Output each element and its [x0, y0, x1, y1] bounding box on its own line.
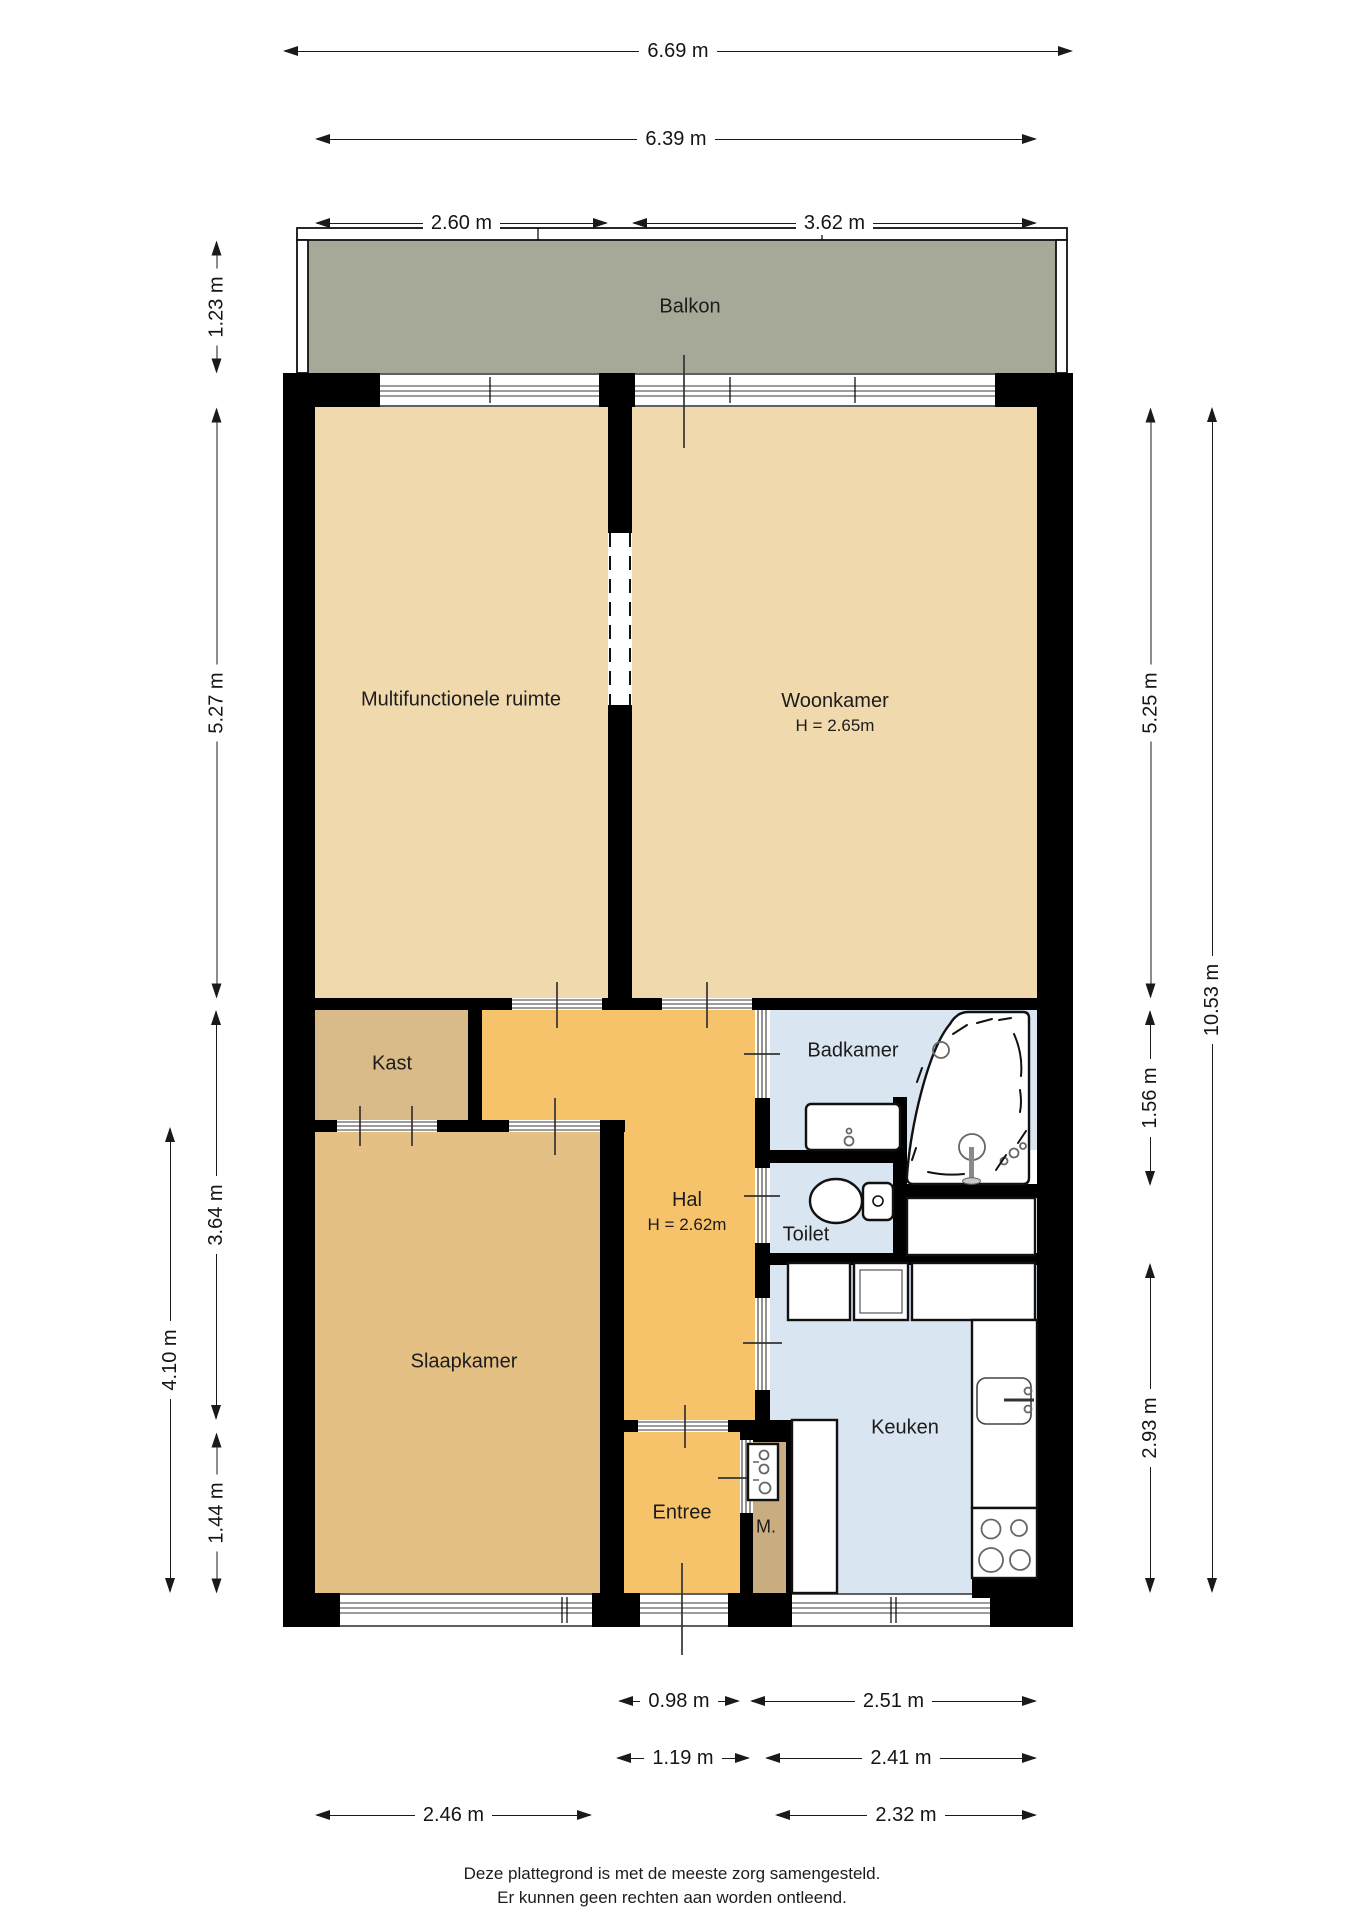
room-label-toilet: Toilet	[783, 1224, 830, 1247]
dim-top-right-room: 3.62 m	[632, 210, 1037, 236]
toilet-icon	[810, 1179, 893, 1223]
room-label-woonkamer: Woonkamer H = 2.65m	[781, 690, 888, 736]
dim-bottom-keuken-3: 2.32 m	[775, 1802, 1037, 1828]
dim-right-badkamer: 1.56 m	[1137, 1010, 1163, 1186]
ceiling-height-hal: H = 2.62m	[648, 1215, 727, 1235]
kitchen-sink-icon	[972, 1320, 1037, 1508]
meter-cabinet-icon	[748, 1444, 778, 1500]
open-passage-dashed	[608, 533, 632, 705]
dim-top-left-room: 2.60 m	[315, 210, 608, 236]
door-icon	[638, 1420, 728, 1432]
fridge-icon	[792, 1420, 837, 1593]
dim-bottom-keuken-1: 2.51 m	[750, 1688, 1037, 1714]
room-label-keuken: Keuken	[871, 1417, 939, 1440]
dim-right-keuken: 2.93 m	[1137, 1263, 1163, 1593]
kitchen-counter	[788, 1263, 1035, 1320]
room-hal-floor-lower	[624, 1110, 755, 1420]
door-icon	[755, 1298, 770, 1390]
front-door-icon	[640, 1594, 728, 1626]
washbasin-icon	[806, 1104, 900, 1150]
room-label-balkon: Balkon	[659, 296, 720, 319]
window-icon	[340, 1594, 592, 1626]
window-band-bottom	[340, 1594, 990, 1626]
dim-bottom-entree-2: 1.19 m	[616, 1745, 750, 1771]
dim-left-mid: 3.64 m	[203, 1010, 229, 1420]
disclaimer-line2: Er kunnen geen rechten aan worden ontlee…	[464, 1886, 881, 1910]
room-label-kast: Kast	[372, 1053, 412, 1076]
disclaimer: Deze plattegrond is met de meeste zorg s…	[464, 1862, 881, 1910]
bathroom-counter	[907, 1198, 1035, 1255]
door-icon	[337, 1120, 437, 1132]
dim-bottom-slaapkamer: 2.46 m	[315, 1802, 592, 1828]
room-hal-floor-upper	[482, 1010, 755, 1120]
dim-left-lower: 1.44 m	[203, 1432, 229, 1593]
room-label-meterkast: M.	[756, 1517, 776, 1538]
window-band-top	[380, 374, 995, 406]
room-label-multifunctionele-ruimte: Multifunctionele ruimte	[361, 689, 561, 712]
floorplan-page: Balkon Multifunctionele ruimte Woonkamer…	[0, 0, 1358, 1920]
dim-bottom-entree-1: 0.98 m	[618, 1688, 740, 1714]
ceiling-height-woonkamer: H = 2.65m	[781, 716, 888, 736]
dim-bottom-keuken-2: 2.41 m	[765, 1745, 1037, 1771]
dim-top-inner: 6.39 m	[315, 126, 1037, 152]
door-icon	[755, 1168, 770, 1243]
room-label-hal: Hal H = 2.62m	[648, 1189, 727, 1235]
room-label-badkamer: Badkamer	[807, 1040, 898, 1063]
dim-left-outer: 4.10 m	[157, 1127, 183, 1593]
dim-left-upper: 5.27 m	[203, 407, 229, 998]
stove-icon	[972, 1508, 1037, 1578]
window-icon	[380, 374, 599, 406]
window-icon	[792, 1594, 990, 1626]
room-label-entree: Entree	[653, 1502, 712, 1525]
dim-top-total: 6.69 m	[283, 38, 1073, 64]
disclaimer-line1: Deze plattegrond is met de meeste zorg s…	[464, 1862, 881, 1886]
dim-left-balkon: 1.23 m	[203, 240, 229, 373]
window-icon	[635, 374, 995, 406]
room-label-slaapkamer: Slaapkamer	[411, 1351, 518, 1374]
balcony-side-wall-right	[1056, 240, 1067, 373]
balcony-side-wall-left	[297, 240, 308, 373]
dim-right-upper: 5.25 m	[1137, 407, 1163, 998]
dim-right-total: 10.53 m	[1199, 407, 1225, 1593]
